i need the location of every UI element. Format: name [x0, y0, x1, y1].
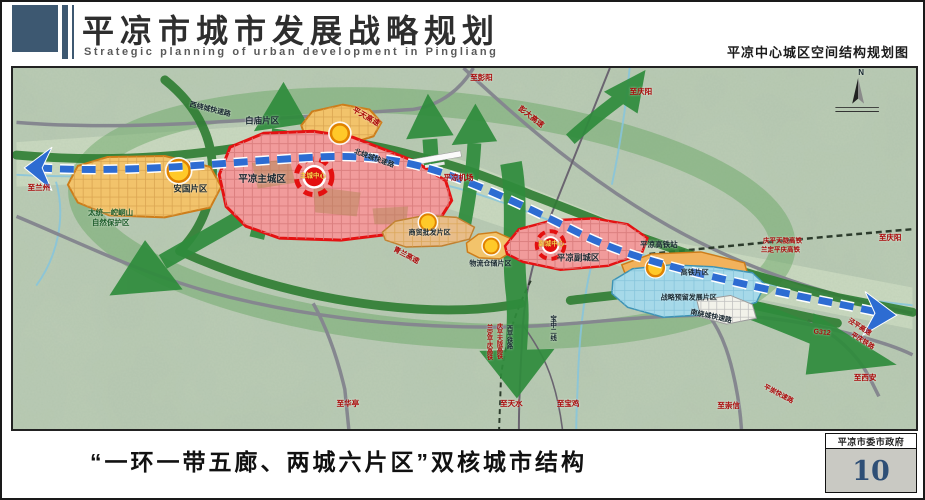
agency-label: 平凉市委市政府: [826, 434, 916, 449]
map-svg: [13, 68, 916, 429]
page-number-box: 平凉市委市政府 10: [825, 433, 917, 493]
document-page: 平凉市城市发展战略规划 Strategic planning of urban …: [0, 0, 925, 500]
page-number: 10: [826, 449, 916, 493]
planning-map: 至兰州至彭阳至庆阳彭大高速平天高速西绕城快速路北绕城快速路平凉机场白庙片区平凉主…: [11, 66, 918, 431]
header-accent-square: [12, 5, 58, 52]
page-subtitle-en: Strategic planning of urban development …: [84, 46, 499, 58]
header: 平凉市城市发展战略规划 Strategic planning of urban …: [2, 2, 923, 64]
sheet-title: 平凉中心城区空间结构规划图: [727, 42, 909, 61]
header-accent-bar: [62, 5, 68, 59]
header-accent-bar-thin: [72, 5, 74, 59]
structure-caption: “一环一带五廊、两城六片区”双核城市结构: [90, 443, 587, 477]
